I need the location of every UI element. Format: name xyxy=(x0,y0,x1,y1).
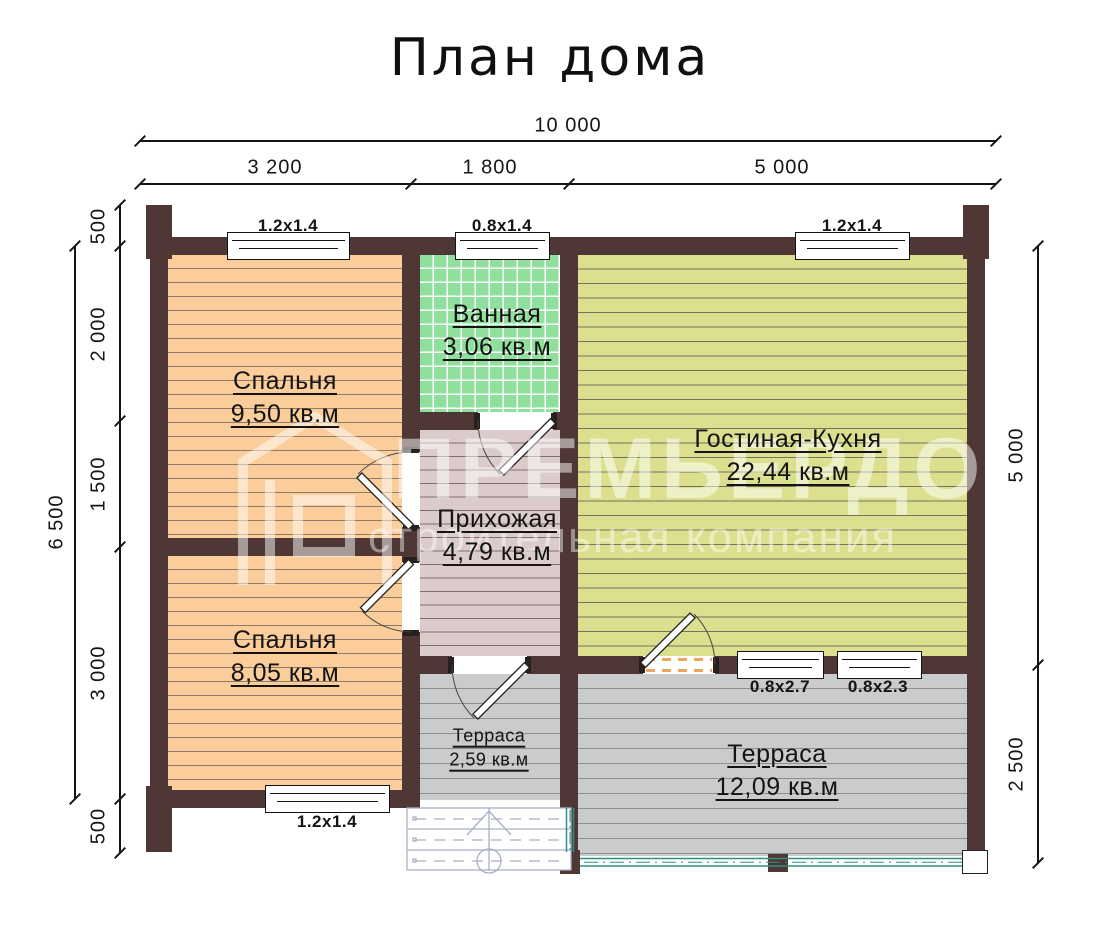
room-area: 12,09 кв.м xyxy=(716,771,839,804)
dim-left-seg-5: 500 xyxy=(88,808,111,844)
window-label-bedroom2-bottom: 1.2x1.4 xyxy=(297,812,357,832)
watermark-logo xyxy=(243,417,387,585)
dim-top-total: 10 000 xyxy=(534,115,601,138)
dim-left-seg-2: 2 000 xyxy=(88,306,111,361)
room-label-terrace-small: Терраса 2,59 кв.м xyxy=(449,724,528,773)
room-area: 8,05 кв.м xyxy=(231,657,339,690)
room-label-bedroom-1: Спальня 9,50 кв.м xyxy=(231,365,339,431)
room-name: Ванная xyxy=(443,298,551,331)
room-name: Гостиная-Кухня xyxy=(694,423,881,456)
dim-line-top-total xyxy=(140,140,996,142)
dim-left-seg-3: 1 500 xyxy=(88,456,111,511)
window-label-terrace-left: 0.8x2.7 xyxy=(750,677,810,697)
room-name: Прихожая xyxy=(437,503,557,536)
room-area: 9,50 кв.м xyxy=(231,398,339,431)
plan-overlay-graphics xyxy=(0,0,1100,950)
room-name: Терраса xyxy=(449,724,528,748)
room-label-terrace-big: Терраса 12,09 кв.м xyxy=(716,738,839,804)
dim-top-seg-3: 5 000 xyxy=(754,157,809,180)
door-threshold-dashes xyxy=(646,660,712,671)
dim-right-seg-1: 5 000 xyxy=(1006,427,1029,482)
terrace-railing xyxy=(567,808,963,866)
room-area: 3,06 кв.м xyxy=(443,331,551,364)
room-name: Спальня xyxy=(231,624,339,657)
window-label-terrace-right: 0.8x2.3 xyxy=(848,677,908,697)
room-label-living-kitchen: Гостиная-Кухня 22,44 кв.м xyxy=(694,423,881,489)
door-arcs xyxy=(358,421,715,718)
room-area: 4,79 кв.м xyxy=(437,536,557,569)
room-name: Спальня xyxy=(231,365,339,398)
dim-top-seg-2: 1 800 xyxy=(462,157,517,180)
room-name: Терраса xyxy=(716,738,839,771)
window-label-living-top: 1.2x1.4 xyxy=(822,216,882,236)
room-label-hallway: Прихожая 4,79 кв.м xyxy=(437,503,557,569)
room-label-bathroom: Ванная 3,06 кв.м xyxy=(443,298,551,364)
dim-left-total: 6 500 xyxy=(46,494,69,549)
page-title: План дома xyxy=(390,28,711,88)
room-area: 2,59 кв.м xyxy=(449,748,528,772)
window-label-bathroom-top: 0.8x1.4 xyxy=(472,216,532,236)
dim-top-seg-1: 3 200 xyxy=(247,157,302,180)
dim-left-seg-4: 3 000 xyxy=(88,645,111,700)
dim-line-right-segments xyxy=(1037,246,1039,863)
dim-line-left-total xyxy=(74,246,76,799)
room-label-bedroom-2: Спальня 8,05 кв.м xyxy=(231,624,339,690)
room-area: 22,44 кв.м xyxy=(694,456,881,489)
dim-right-seg-2: 2 500 xyxy=(1006,736,1029,791)
window-label-bedroom1-top: 1.2x1.4 xyxy=(258,216,318,236)
porch-steps xyxy=(407,808,571,873)
dim-line-left-segments xyxy=(119,205,121,853)
floor-plan-canvas: План дома 10 000 3 200 1 800 5 000 6 500… xyxy=(0,0,1100,950)
dim-left-seg-1: 500 xyxy=(88,208,111,244)
